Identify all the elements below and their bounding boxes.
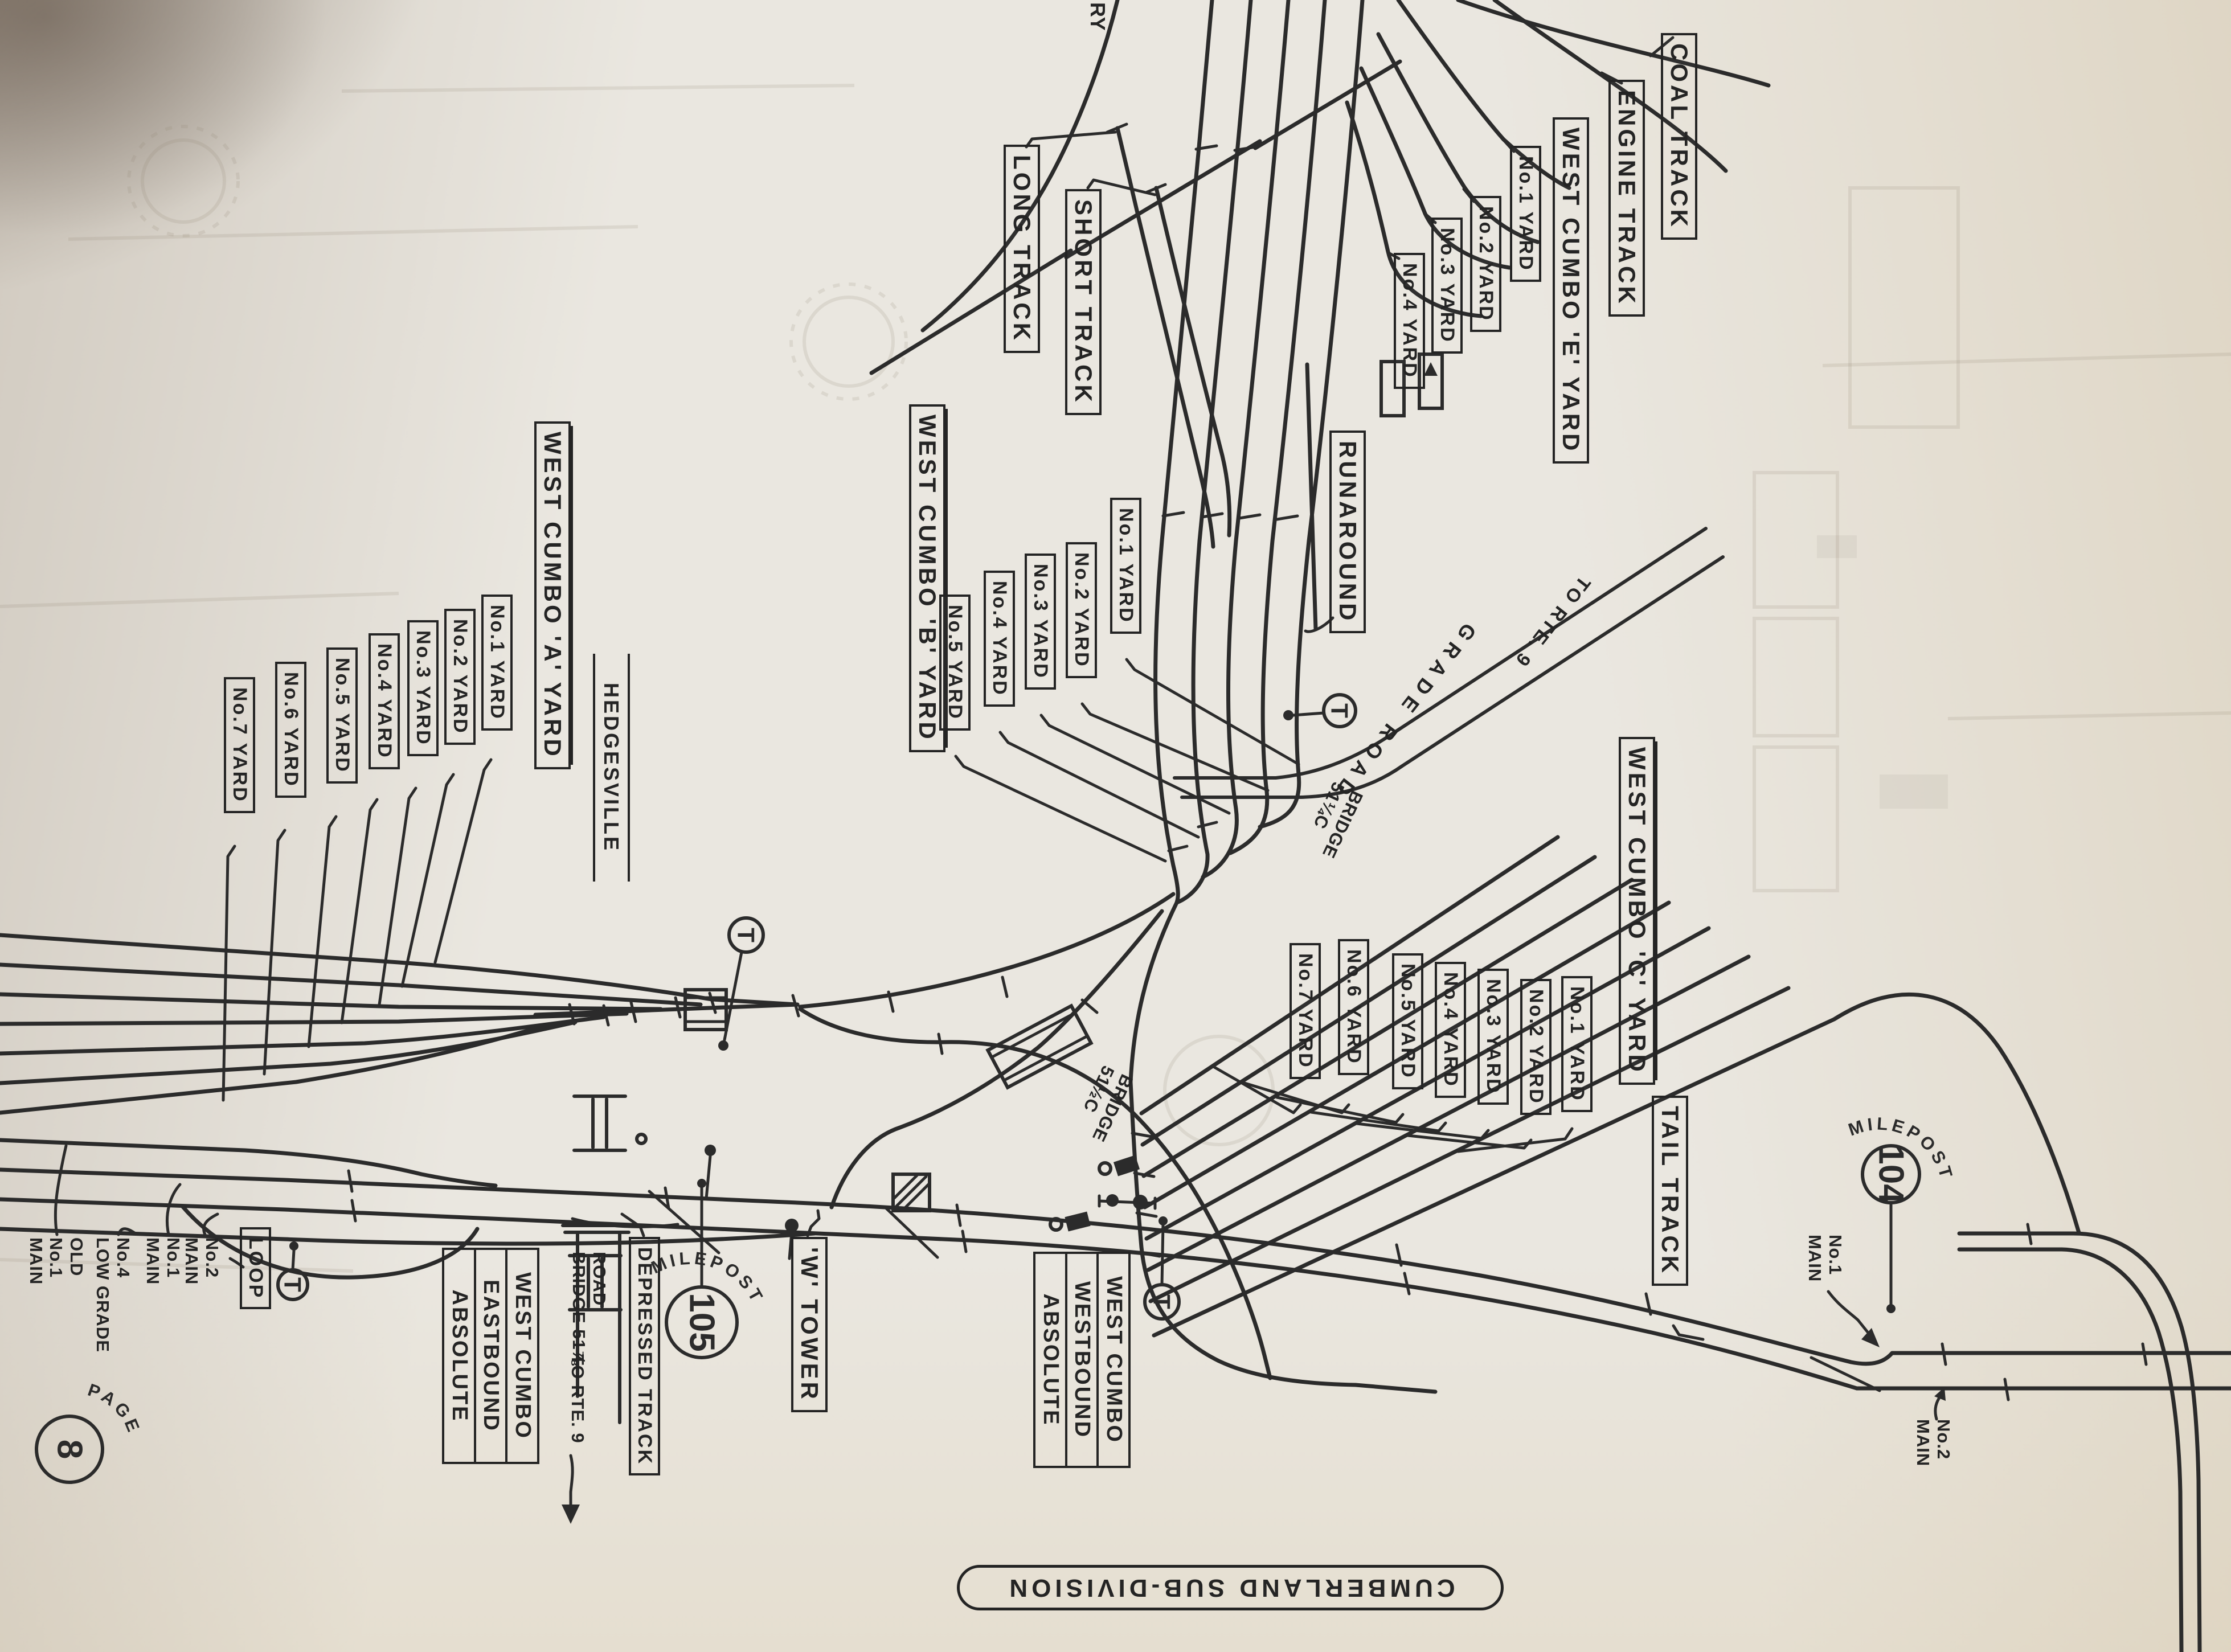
c-yard-track-7 xyxy=(1151,988,1788,1301)
milepost-104: 104 MILEPOST xyxy=(1846,1113,1958,1313)
label-no2-main-right-l2: MAIN xyxy=(1913,1419,1934,1466)
track-chart-photo: T T T T 104 MILEPOST 105 xyxy=(0,0,2231,1652)
b-yard-track-3 xyxy=(1203,0,1288,877)
label-c-yard-4: No.4 YARD xyxy=(1435,962,1466,1098)
signal-box-westbound-line1: WEST CUMBO xyxy=(1099,1254,1128,1466)
label-old-no1-main-l2: No.1 xyxy=(46,1237,67,1285)
c-yard-trunk xyxy=(1131,903,1435,1392)
label-a-yard-3: No.3 YARD xyxy=(407,620,439,756)
label-road-bridge: ROAD BRIDGE 51⅞ xyxy=(569,1252,609,1366)
to-rte9-arrow-shaft xyxy=(571,1456,572,1508)
label-no4-low-grade-l1: No.4 xyxy=(113,1237,133,1352)
svg-text:8: 8 xyxy=(50,1440,89,1459)
svg-text:T: T xyxy=(1149,1294,1176,1309)
label-road-bridge-l2: BRIDGE 51⅞ xyxy=(569,1252,590,1366)
label-no1-main-left-l2: MAIN xyxy=(143,1237,163,1285)
label-b-yard-2: No.2 YARD xyxy=(1066,542,1097,678)
label-b-yard-5: No.5 YARD xyxy=(939,595,971,731)
label-to-rte9-bridge: TO RTE. 9 xyxy=(567,1354,588,1444)
label-a-yard-title: WEST CUMBO 'A' YARD xyxy=(534,421,571,769)
label-a-yard-7: No.7 YARD xyxy=(224,677,255,813)
label-no4-low-grade: No.4 LOW GRADE xyxy=(93,1237,133,1352)
label-c-yard-5: No.5 YARD xyxy=(1392,953,1423,1089)
label-no1-main-right-l1: No.1 xyxy=(1825,1235,1845,1282)
label-no2-main-left-l1: No.2 xyxy=(202,1237,222,1285)
a-yard-track-4 xyxy=(0,1014,627,1024)
coal-track xyxy=(1458,0,1769,85)
girder-symbol-upper xyxy=(574,1096,625,1150)
label-c-yard-3: No.3 YARD xyxy=(1477,969,1509,1105)
label-b-yard-3: No.3 YARD xyxy=(1025,554,1056,690)
to-rte9-arrowhead xyxy=(562,1505,580,1524)
main-curve-east-1 xyxy=(1959,1233,2200,1652)
left-main-leaders xyxy=(55,1146,218,1235)
label-no1-main-left-l1: No.1 xyxy=(163,1237,183,1285)
label-a-yard-5: No.5 YARD xyxy=(326,647,358,784)
label-old-no1-main-l3: MAIN xyxy=(26,1237,46,1285)
svg-text:T: T xyxy=(280,1277,306,1292)
label-a-yard-2: No.2 YARD xyxy=(444,609,476,745)
label-c-yard-7: No.7 YARD xyxy=(1290,943,1321,1079)
label-no2-main-right-l1: No.2 xyxy=(1933,1419,1954,1466)
label-old-no1-main: OLD No.1 MAIN xyxy=(26,1237,87,1285)
label-edge-fragment: RY xyxy=(1086,2,1110,31)
west-connection xyxy=(832,911,1162,1207)
label-loop: LOOP xyxy=(240,1227,271,1309)
label-no2-main-left: No.2 MAIN xyxy=(182,1237,222,1285)
label-e-yard-1: No.1 YARD xyxy=(1510,146,1541,282)
label-a-yard-4: No.4 YARD xyxy=(369,633,400,769)
telephone-symbol-1: T xyxy=(1283,695,1356,727)
telephone-symbol-2: T xyxy=(718,918,763,1051)
label-b-yard-4: No.4 YARD xyxy=(984,571,1015,707)
label-no2-main-left-l2: MAIN xyxy=(182,1237,202,1285)
page-number-symbol: 8 PAGE xyxy=(36,1380,145,1482)
label-old-no1-main-l1: OLD xyxy=(66,1237,87,1285)
signal-box-eastbound-line3: ABSOLUTE xyxy=(444,1250,476,1462)
signal-box-eastbound: WEST CUMBO EASTBOUND ABSOLUTE xyxy=(442,1248,539,1464)
svg-text:104: 104 xyxy=(1872,1145,1911,1204)
svg-text:T: T xyxy=(1327,703,1353,718)
label-a-yard-1: No.1 YARD xyxy=(481,595,513,731)
label-b-yard-1: No.1 YARD xyxy=(1110,498,1141,634)
label-no1-main-right-l2: MAIN xyxy=(1805,1235,1825,1282)
b-yard-trunk xyxy=(800,894,1173,1007)
signal-box-westbound: WEST CUMBO WESTBOUND ABSOLUTE xyxy=(1033,1252,1131,1468)
b-yard-track-5 xyxy=(1156,0,1212,903)
label-e-yard-2: No.2 YARD xyxy=(1470,196,1501,332)
label-c-yard-title: WEST CUMBO 'C' YARD xyxy=(1619,737,1655,1085)
svg-text:T: T xyxy=(733,928,760,942)
label-e-yard-title: WEST CUMBO 'E' YARD xyxy=(1553,117,1589,464)
main-curve-east-2 xyxy=(1959,1249,2181,1652)
signal-box-eastbound-line1: WEST CUMBO xyxy=(507,1250,537,1462)
label-no2-main-right: No.2 MAIN xyxy=(1913,1419,1954,1466)
tower-symbol xyxy=(893,1174,930,1211)
signal-box-eastbound-line2: EASTBOUND xyxy=(476,1250,508,1462)
label-no1-main-right: No.1 MAIN xyxy=(1805,1235,1845,1282)
label-runaround: RUNAROUND xyxy=(1329,431,1366,633)
label-c-yard-6: No.6 YARD xyxy=(1338,939,1369,1075)
label-road-bridge-l1: ROAD xyxy=(589,1252,609,1366)
label-e-yard-4: No.4 YARD xyxy=(1394,253,1425,389)
label-c-yard-1: No.1 YARD xyxy=(1561,976,1593,1112)
c-yard-track-3 xyxy=(1144,880,1632,1176)
label-e-yard-3: No.3 YARD xyxy=(1431,218,1463,354)
division-banner: CUMBERLAND SUB-DIVISION xyxy=(957,1565,1504,1610)
symbols-layer: T T T T 104 MILEPOST 105 xyxy=(36,354,1957,1482)
label-tail-track: TAIL TRACK xyxy=(1652,1096,1688,1286)
label-short-track: SHORT TRACK xyxy=(1065,189,1102,415)
label-long-track: LONG TRACK xyxy=(1004,145,1040,353)
signal-box-westbound-line3: ABSOLUTE xyxy=(1035,1254,1067,1466)
label-no1-main-left: No.1 MAIN xyxy=(143,1237,183,1285)
label-a-yard-6: No.6 YARD xyxy=(275,662,306,798)
signal-box-westbound-line2: WESTBOUND xyxy=(1067,1254,1099,1466)
label-c-yard-2: No.2 YARD xyxy=(1520,979,1552,1115)
label-depressed-track: DEPRESSED TRACK xyxy=(629,1237,660,1475)
label-w-tower: 'W' TOWER xyxy=(791,1237,828,1412)
label-no4-low-grade-l2: LOW GRADE xyxy=(93,1237,113,1352)
label-coal-track: COAL TRACK xyxy=(1661,33,1697,240)
label-engine-track: ENGINE TRACK xyxy=(1608,80,1645,317)
yard-lead-diagonal xyxy=(871,62,1400,373)
svg-text:105: 105 xyxy=(682,1293,722,1351)
label-hedgesville-station: HEDGESVILLE xyxy=(593,654,630,882)
